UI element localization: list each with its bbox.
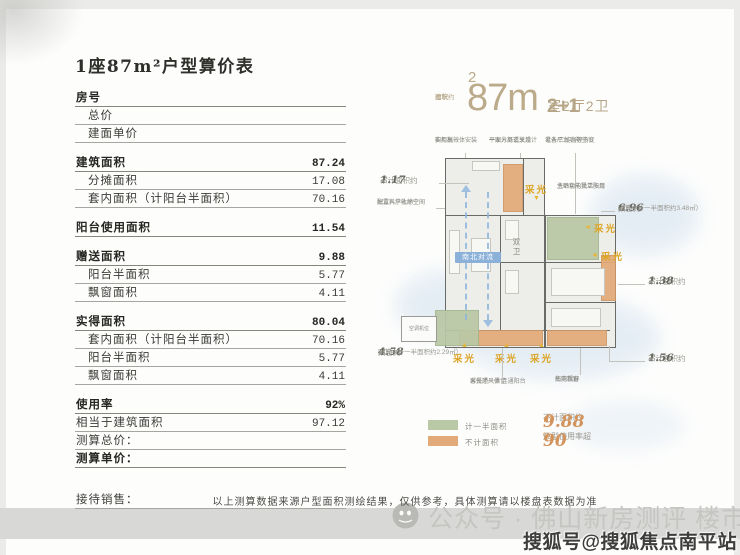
- wind-label: 南北对流: [455, 252, 501, 263]
- daylight-arrow-icon: ◄: [591, 252, 598, 259]
- table-row: 飘窗面积4.11: [75, 367, 346, 385]
- table-row: 实得面积80.04: [75, 313, 346, 331]
- row-label: 套内面积（计阳台半面积）: [76, 190, 238, 206]
- measure-subnote: （其中计一半面积约3.48㎡）: [618, 204, 702, 214]
- row-value: 4.11: [319, 288, 345, 300]
- table-row: 测算单价：: [75, 450, 346, 468]
- no-count-zone-bottom-right: [547, 330, 607, 346]
- leader-line: [609, 361, 645, 362]
- page-title: 1座87m²户型算价表: [75, 52, 346, 77]
- callout-line2: 一家人舒适享用: [489, 138, 531, 145]
- row-value: 92%: [325, 400, 345, 412]
- wall: [545, 302, 616, 303]
- area-number: 87m: [467, 77, 538, 120]
- row-value: 4.11: [319, 371, 345, 383]
- measure-subnote: （其中计一半面积约2.29㎡）: [378, 348, 462, 358]
- callout-line2: 配置科学收纳空间: [377, 200, 425, 207]
- table-row: 赠送面积9.88: [75, 248, 346, 266]
- row-label: 赠送面积: [76, 248, 126, 264]
- table-row: 相当于建筑面积97.12: [75, 414, 346, 432]
- wall: [523, 158, 524, 215]
- row-label: 飘窗面积: [76, 284, 138, 300]
- wall: [445, 215, 545, 216]
- wall: [500, 215, 501, 330]
- row-label: 使用率: [76, 396, 114, 412]
- bathroom-fixture: [505, 220, 519, 240]
- callout-line2: 采光通风俱佳: [470, 379, 506, 386]
- wall: [500, 262, 616, 263]
- daylight-label: 采光: [594, 221, 617, 235]
- leader-line: [609, 346, 610, 362]
- table-row: 套内面积（计阳台半面积）70.16: [75, 331, 346, 349]
- row-value: 70.16: [312, 335, 345, 347]
- leader-line: [601, 211, 615, 212]
- table-row: 阳台半面积5.77: [75, 349, 346, 367]
- callout-line2: 老人/二娃房等多变: [545, 138, 595, 145]
- row-value: 70.16: [312, 194, 345, 206]
- ac-unit-label: 空调机位: [402, 325, 436, 332]
- row-label: 测算总价：: [76, 432, 139, 448]
- table-row: 总价: [75, 107, 346, 125]
- row-label: 相当于建筑面积: [76, 414, 164, 430]
- leader-line: [580, 348, 581, 375]
- table-row: 分摊面积17.08: [75, 172, 346, 190]
- table-row: 测算总价：: [75, 432, 346, 450]
- row-label: 阳台半面积: [76, 349, 151, 365]
- row-label: 建筑面积: [76, 154, 126, 170]
- dual-bath-label: 双卫: [511, 238, 522, 257]
- ac-unit-box: 空调机位: [401, 316, 437, 342]
- row-value: 97.12: [312, 418, 345, 430]
- no-count-zone-top: [503, 164, 523, 212]
- daylight-label: 采光: [525, 182, 548, 196]
- daylight-label: 采光: [495, 351, 518, 365]
- row-value: 80.04: [312, 317, 345, 329]
- daylight-arrow-icon: ▼: [533, 195, 540, 202]
- spec-rest: 室2厅2卫: [547, 96, 610, 116]
- floorplan-panel: 建筑 面积约 87m2 2+1室2厅2卫 橱柜板一体安装 实用高效 平面分离玄关…: [375, 80, 737, 470]
- daylight-label: 采光: [601, 249, 624, 263]
- row-label: 阳台使用面积: [76, 219, 151, 235]
- row-value: 17.08: [312, 176, 345, 188]
- row-label: 实得面积: [76, 313, 126, 329]
- daylight-arrow-icon: ▲: [538, 342, 545, 349]
- row-label: 分摊面积: [76, 172, 138, 188]
- area-prefix-line2: 面积约: [435, 94, 455, 102]
- price-table: 1座87m²户型算价表 房号 总价 建面单价 建筑面积87.24 分摊面积17.…: [75, 52, 346, 509]
- leader-line: [618, 284, 645, 285]
- legend-no-area-label: 不计面积: [465, 437, 499, 448]
- callout-line2: 实用高效: [435, 138, 459, 145]
- bathroom-fixture: [505, 270, 519, 294]
- stat-unit: ㎡: [543, 412, 552, 425]
- stat-unit: %: [543, 431, 551, 441]
- row-label: 测算单价：: [76, 450, 139, 466]
- leader-line: [436, 208, 445, 209]
- footer-disclaimer: 以上测算数据来源户型面积测绘结果，仅供参考，具体测算请以楼盘表数据为准: [185, 493, 625, 508]
- row-label: 房号: [76, 89, 101, 105]
- daylight-arrow-icon: ▲: [503, 342, 510, 349]
- measure-unit: ㎡: [648, 354, 656, 364]
- leader-line: [439, 183, 469, 184]
- row-label: 总价: [76, 107, 113, 123]
- legend-no-area-swatch: [428, 436, 458, 446]
- table-row: 套内面积（计阳台半面积）70.16: [75, 190, 346, 208]
- table-row: 阳台半面积5.77: [75, 266, 346, 284]
- sohu-watermark-text: 搜狐号@搜狐焦点南平站: [523, 527, 737, 554]
- half-count-balcony-bottom: [435, 310, 479, 346]
- legend-half-area-label: 计一半面积: [465, 421, 508, 432]
- row-value: 87.24: [312, 158, 345, 170]
- callout-line2: 洗晒功能灵活多用: [557, 184, 605, 191]
- legend-half-area-swatch: [428, 420, 458, 430]
- row-value: 5.77: [319, 353, 345, 365]
- table-row: 使用率92%: [75, 396, 346, 414]
- bed: [551, 268, 605, 296]
- table-row: 建筑面积87.24: [75, 154, 346, 172]
- row-label: 套内面积（计阳台半面积）: [76, 331, 238, 347]
- callout-line2: 拓宽视野: [555, 377, 579, 384]
- daylight-arrow-icon: ◄: [584, 224, 591, 231]
- daylight-label: 采光: [530, 351, 553, 365]
- row-label: 阳台半面积: [76, 266, 151, 282]
- measure-unit: ㎡: [380, 176, 388, 186]
- wind-arrow-head: [461, 185, 471, 192]
- row-value: 11.54: [312, 223, 345, 235]
- area-value: 87m2: [467, 77, 474, 120]
- bed: [551, 308, 601, 327]
- table-row: 阳台使用面积11.54: [75, 219, 346, 237]
- measure-unit: ㎡: [648, 277, 656, 287]
- row-value: 5.77: [319, 270, 345, 282]
- table-row: 建面单价: [75, 125, 346, 143]
- row-label: 飘窗面积: [76, 367, 138, 383]
- table-row: 飘窗面积4.11: [75, 284, 346, 302]
- wind-arrow-head: [483, 320, 493, 327]
- row-label: 建面单价: [76, 125, 138, 141]
- kitchen-counter: [472, 161, 500, 171]
- area-superscript: 2: [468, 69, 475, 86]
- leader-line: [502, 348, 503, 377]
- table-row: 房号: [75, 89, 346, 107]
- row-label: 接待销售：: [76, 491, 139, 507]
- leader-line: [575, 199, 576, 214]
- row-value: 9.88: [319, 252, 345, 264]
